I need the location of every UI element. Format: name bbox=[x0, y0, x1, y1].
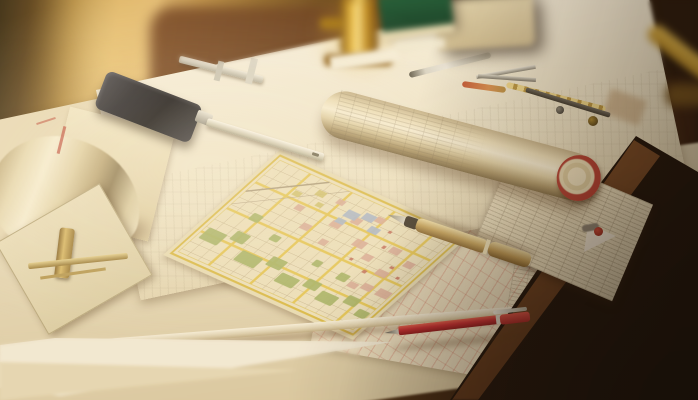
warm-color-cast bbox=[0, 0, 698, 400]
photo-canvas bbox=[0, 0, 698, 400]
